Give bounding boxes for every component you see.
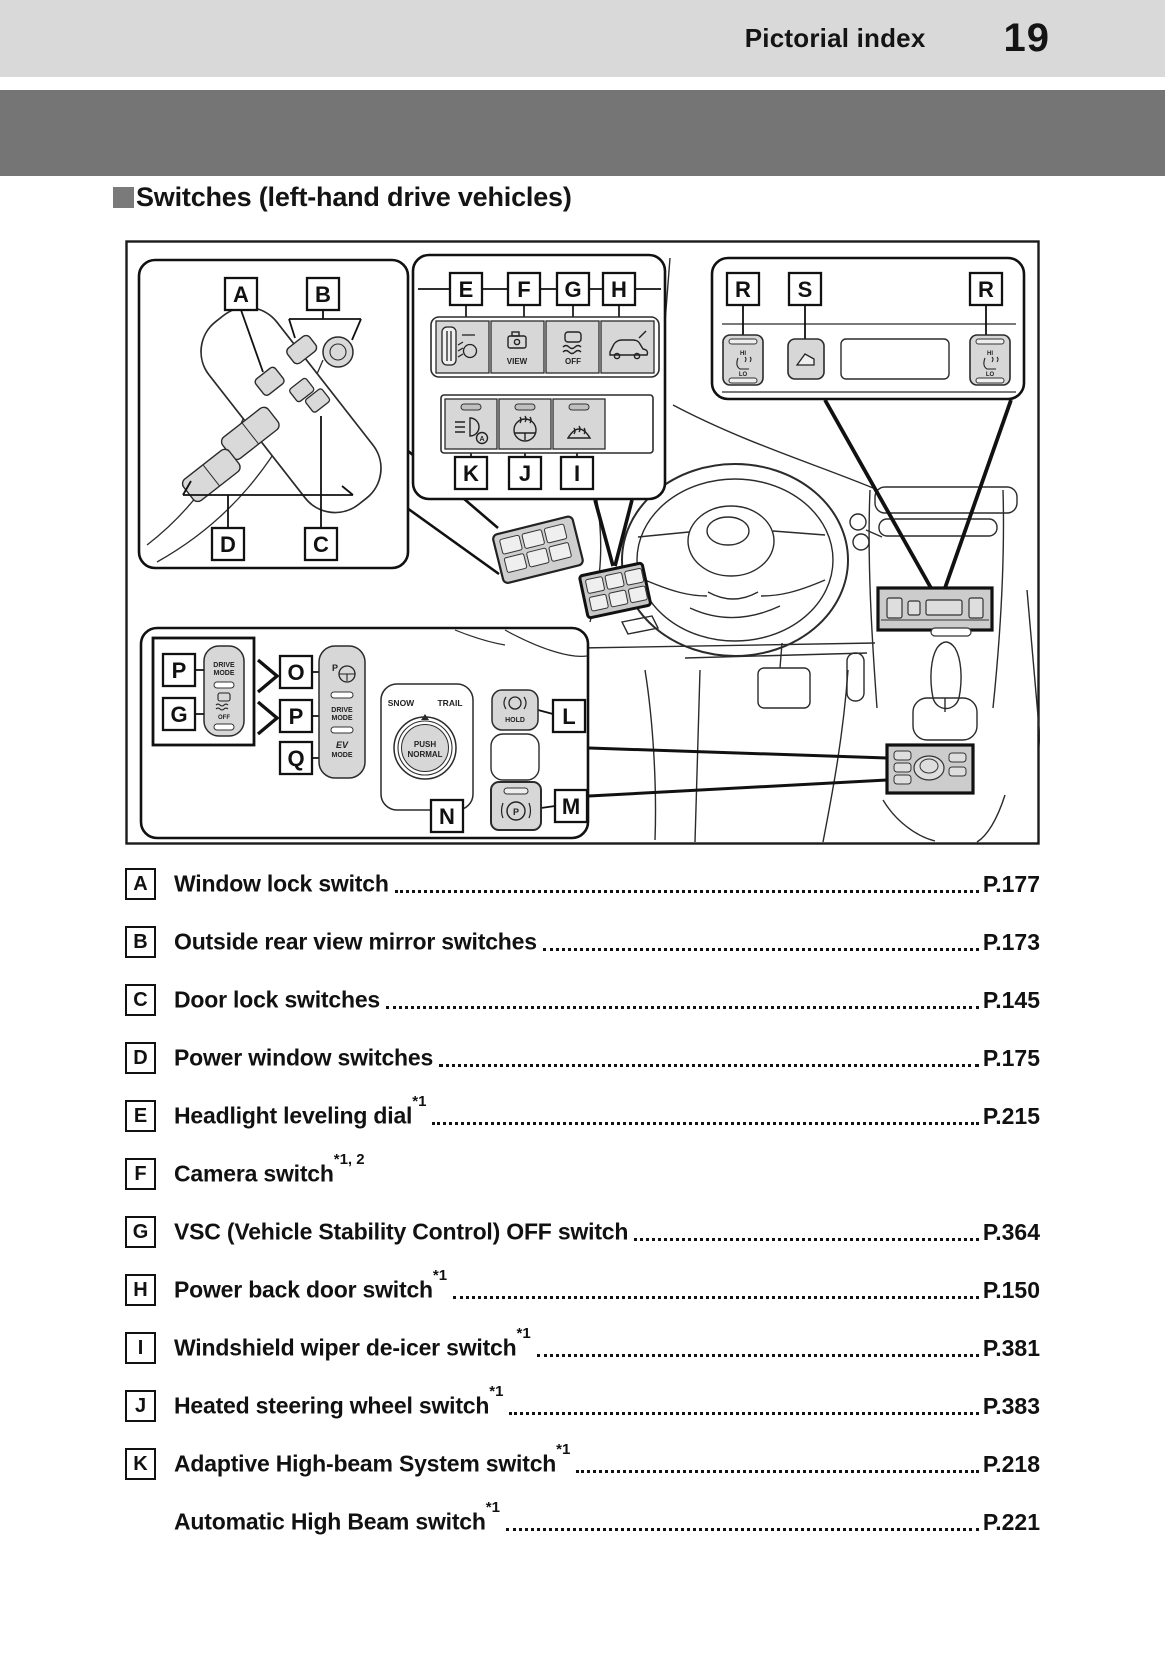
dotted-leader	[386, 1006, 979, 1009]
svg-text:A: A	[479, 436, 484, 443]
callout-passenger-switches: HI LO HI LO R S R	[712, 258, 1024, 399]
svg-text:A: A	[233, 282, 249, 307]
svg-text:LO: LO	[986, 372, 995, 378]
svg-text:S: S	[798, 277, 813, 302]
index-item-label: Window lock switch	[174, 870, 389, 898]
index-page-reference: P.150	[983, 1277, 1040, 1304]
svg-text:M: M	[562, 794, 580, 819]
svg-text:B: B	[315, 282, 331, 307]
svg-text:VIEW: VIEW	[507, 357, 528, 366]
index-letter-badge: G	[125, 1216, 156, 1248]
svg-text:G: G	[170, 702, 187, 727]
svg-text:PUSH: PUSH	[414, 740, 436, 749]
section-heading: Switches (left-hand drive vehicles)	[113, 182, 572, 213]
svg-text:R: R	[978, 277, 994, 302]
callout-door-switches: A B D C	[139, 260, 408, 568]
index-letter-badge: E	[125, 1100, 156, 1132]
chapter-band	[0, 90, 1165, 176]
index-row: C Door lock switches P.145	[125, 971, 1040, 1029]
svg-text:P: P	[513, 807, 519, 817]
svg-text:DRIVE: DRIVE	[331, 707, 353, 714]
index-row: E Headlight leveling dial*1 P.215	[125, 1087, 1040, 1145]
svg-text:HOLD: HOLD	[505, 717, 525, 724]
index-page-reference: P.173	[983, 929, 1040, 956]
callout-console-switches: DRIVE MODE OFF P DRIVE MODE	[141, 628, 588, 838]
index-footnote-marker: *1	[489, 1383, 503, 1400]
svg-text:K: K	[463, 461, 479, 486]
index-item-label: Power back door switch*1	[174, 1276, 447, 1304]
parking-brake-switch-icon: P	[491, 782, 541, 830]
heading-square-marker	[113, 187, 134, 208]
mirror-fold-switch-icon	[788, 339, 824, 379]
index-page-reference: P.383	[983, 1393, 1040, 1420]
index-page-reference: P.364	[983, 1219, 1040, 1246]
svg-text:MODE: MODE	[332, 715, 353, 722]
dotted-leader	[543, 948, 979, 951]
index-row: D Power window switches P.175	[125, 1029, 1040, 1087]
svg-text:J: J	[519, 461, 531, 486]
index-letter-badge: A	[125, 868, 156, 900]
dotted-leader	[453, 1296, 979, 1299]
svg-text:MODE: MODE	[332, 752, 353, 759]
index-item-label: VSC (Vehicle Stability Control) OFF swit…	[174, 1218, 628, 1246]
svg-text:HI: HI	[740, 351, 746, 357]
index-row: I Windshield wiper de-icer switch*1 P.38…	[125, 1319, 1040, 1377]
index-row: B Outside rear view mirror switches P.17…	[125, 913, 1040, 971]
svg-text:OFF: OFF	[565, 357, 581, 366]
dotted-leader	[395, 890, 979, 893]
brake-hold-switch-icon: HOLD	[492, 690, 538, 730]
console-upper-panel-highlight	[878, 588, 992, 636]
index-row: K Adaptive High-beam System switch*1 P.2…	[125, 1435, 1040, 1493]
blank-switch-slot	[841, 339, 949, 379]
console-lower-panel-highlight	[887, 745, 973, 793]
index-page-reference: P.221	[983, 1509, 1040, 1536]
dotted-leader	[537, 1354, 979, 1357]
svg-text:E: E	[459, 277, 474, 302]
switch-location-diagram: A B D C	[125, 240, 1040, 845]
dotted-leader	[509, 1412, 978, 1415]
svg-text:D: D	[220, 532, 236, 557]
index-footnote-marker: *1	[412, 1093, 426, 1110]
index-item-label: Automatic High Beam switch*1	[174, 1508, 500, 1536]
svg-text:G: G	[564, 277, 581, 302]
index-page-reference: P.215	[983, 1103, 1040, 1130]
index-footnote-marker: *1	[517, 1325, 531, 1342]
seat-heater-switch-icon-right: HI LO	[970, 335, 1010, 385]
index-row: J Heated steering wheel switch*1 P.383	[125, 1377, 1040, 1435]
svg-text:F: F	[517, 277, 530, 302]
drive-mode-pill-small: DRIVE MODE OFF	[204, 646, 244, 736]
svg-text:P: P	[289, 704, 304, 729]
seat-heater-switch-icon: HI LO	[723, 335, 763, 385]
index-letter-badge: J	[125, 1390, 156, 1422]
index-page-reference: P.175	[983, 1045, 1040, 1072]
dotted-leader	[634, 1238, 979, 1241]
index-footnote-marker: *1	[486, 1499, 500, 1516]
header-section-title: Pictorial index	[745, 23, 926, 54]
header-band: Pictorial index 19	[0, 0, 1165, 77]
index-letter-badge: I	[125, 1332, 156, 1364]
index-footnote-marker: *1	[556, 1441, 570, 1458]
dotted-leader	[576, 1470, 979, 1473]
index-page-reference: P.218	[983, 1451, 1040, 1478]
index-page-reference: P.381	[983, 1335, 1040, 1362]
svg-text:MODE: MODE	[214, 670, 235, 677]
svg-text:C: C	[313, 532, 329, 557]
index-row: F Camera switch*1, 2	[125, 1145, 1040, 1203]
mirror-adjust-knob-icon	[323, 337, 353, 367]
index-item-label: Door lock switches	[174, 986, 380, 1014]
index-letter-badge: B	[125, 926, 156, 958]
index-item-label: Headlight leveling dial*1	[174, 1102, 426, 1130]
svg-text:O: O	[287, 660, 304, 685]
index-footnote-marker: *1	[433, 1267, 447, 1284]
index-item-label: Camera switch*1, 2	[174, 1160, 365, 1188]
index-letter-badge: D	[125, 1042, 156, 1074]
svg-text:H: H	[611, 277, 627, 302]
index-row: A Window lock switch P.177	[125, 855, 1040, 913]
pictorial-index-list: A Window lock switch P.177 B Outside rea…	[125, 855, 1040, 1551]
drive-mode-pill-tall: P DRIVE MODE EV MODE	[319, 646, 365, 778]
drive-mode-dial: SNOW TRAIL PUSH NORMAL	[381, 684, 473, 810]
svg-text:P: P	[332, 663, 338, 673]
dotted-leader	[506, 1528, 979, 1531]
index-letter-badge: C	[125, 984, 156, 1016]
svg-text:LO: LO	[739, 372, 748, 378]
header-page-number: 19	[1004, 16, 1051, 61]
index-page-reference: P.177	[983, 871, 1040, 898]
svg-text:I: I	[574, 461, 580, 486]
svg-text:N: N	[439, 804, 455, 829]
svg-text:OFF: OFF	[218, 715, 230, 721]
index-item-label: Windshield wiper de-icer switch*1	[174, 1334, 531, 1362]
svg-text:L: L	[562, 704, 575, 729]
svg-text:TRAIL: TRAIL	[437, 698, 462, 708]
index-footnote-marker: *1, 2	[334, 1151, 365, 1168]
dotted-leader	[439, 1064, 979, 1067]
callout-panel-switches: VIEW OFF A	[413, 255, 665, 499]
dotted-leader	[432, 1122, 978, 1125]
blank-console-switch	[491, 734, 539, 780]
index-letter-badge: F	[125, 1158, 156, 1190]
svg-text:NORMAL: NORMAL	[407, 750, 442, 759]
svg-text:Q: Q	[287, 746, 304, 771]
index-row: H Power back door switch*1 P.150	[125, 1261, 1040, 1319]
index-item-label: Outside rear view mirror switches	[174, 928, 537, 956]
index-item-label: Adaptive High-beam System switch*1	[174, 1450, 570, 1478]
svg-text:P: P	[172, 658, 187, 683]
index-item-label: Heated steering wheel switch*1	[174, 1392, 503, 1420]
index-row: G VSC (Vehicle Stability Control) OFF sw…	[125, 1203, 1040, 1261]
svg-text:DRIVE: DRIVE	[213, 662, 235, 669]
index-item-label: Power window switches	[174, 1044, 433, 1072]
index-letter-badge: H	[125, 1274, 156, 1306]
svg-text:EV: EV	[336, 740, 349, 750]
svg-text:HI: HI	[987, 351, 993, 357]
index-letter-badge: K	[125, 1448, 156, 1480]
svg-text:R: R	[735, 277, 751, 302]
svg-text:SNOW: SNOW	[388, 698, 415, 708]
index-page-reference: P.145	[983, 987, 1040, 1014]
index-row: Automatic High Beam switch*1 P.221	[125, 1493, 1040, 1551]
section-heading-label: Switches (left-hand drive vehicles)	[136, 182, 572, 213]
